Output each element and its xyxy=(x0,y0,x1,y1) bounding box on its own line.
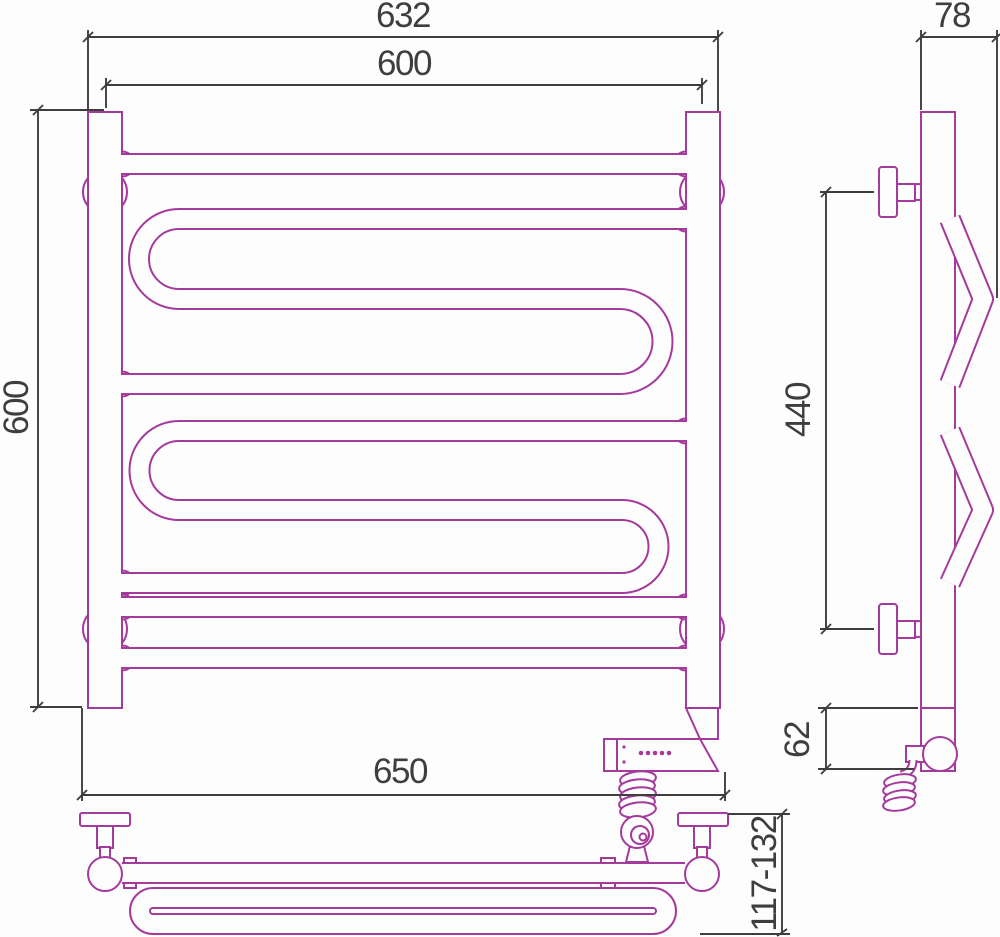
drawing-canvas: 632 600 600 78 xyxy=(0,0,1000,937)
dim-label-wall-offset: 117-132 xyxy=(745,816,784,931)
dim-center-width: 600 xyxy=(101,44,707,108)
dim-label-depth: 78 xyxy=(934,0,970,35)
dim-label-overall-width: 632 xyxy=(376,0,430,35)
front-serpentine-coil-2 xyxy=(121,431,687,583)
front-heating-unit xyxy=(604,708,718,819)
top-serpentine-loop xyxy=(140,898,666,924)
side-collector-tube xyxy=(921,112,955,708)
side-coiled-cable xyxy=(882,772,916,812)
front-serpentine-coil-1 xyxy=(121,219,687,384)
top-coiled-cable xyxy=(621,816,653,862)
top-bracket-left xyxy=(80,813,130,859)
top-left-ball-union xyxy=(88,857,122,891)
side-bracket-top xyxy=(879,167,926,217)
dim-label-center-width: 600 xyxy=(377,44,432,83)
front-left-collector-tube xyxy=(88,112,122,708)
dim-label-height: 600 xyxy=(0,380,36,435)
front-view xyxy=(83,112,724,819)
heater-neck xyxy=(686,708,718,739)
dim-heater-drop: 62 xyxy=(778,703,918,774)
dim-label-heater-drop: 62 xyxy=(778,722,817,758)
top-main-tube xyxy=(122,858,685,888)
top-bracket-right xyxy=(678,813,728,859)
dim-bracket-span: 440 xyxy=(779,187,874,634)
top-right-ball-union xyxy=(685,857,719,891)
top-view xyxy=(80,813,728,924)
side-bracket-bottom xyxy=(879,604,926,654)
dim-label-base-width: 650 xyxy=(373,752,428,791)
front-right-collector-tube xyxy=(686,112,720,708)
dim-label-bracket-span: 440 xyxy=(779,382,818,437)
towel-rail-technical-drawing: 632 600 600 78 xyxy=(0,0,1000,937)
side-heater-knob xyxy=(882,737,957,813)
